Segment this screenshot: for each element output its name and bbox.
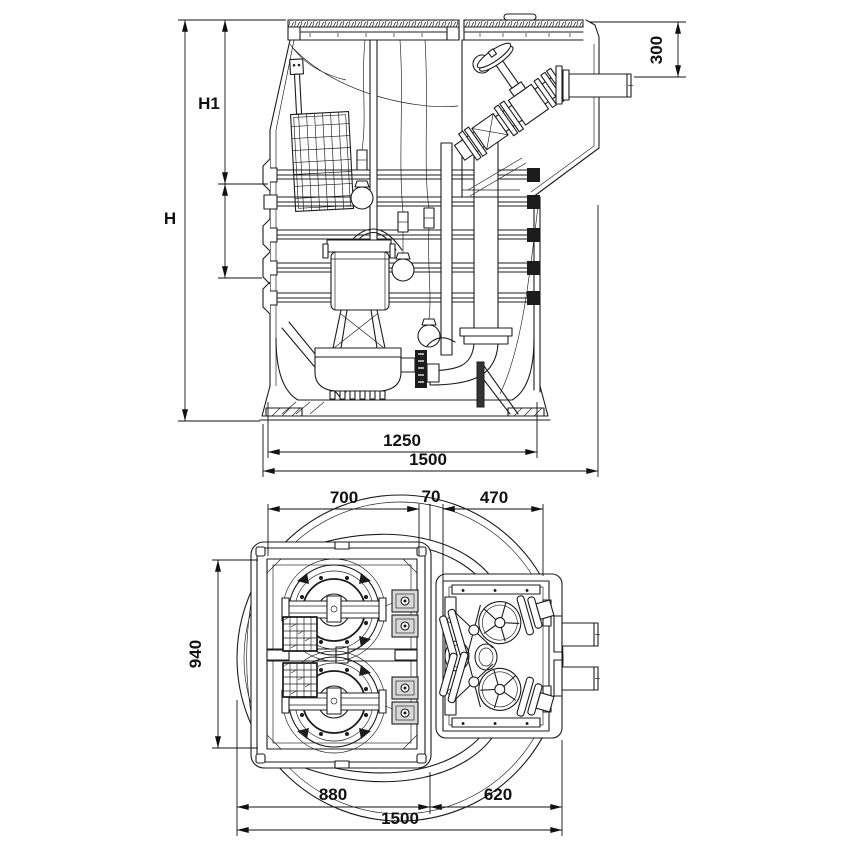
dim-hatch-length-940: 940 xyxy=(186,560,258,748)
dim-label-1500-bottom: 1500 xyxy=(381,809,419,828)
technical-drawing-page: H H1 300 1250 xyxy=(0,0,850,850)
plan-outlet-pipe-2 xyxy=(554,660,600,696)
plan-outlet-pipe-1 xyxy=(554,616,600,652)
dim-label-940: 940 xyxy=(186,640,205,668)
dim-overall-width-1500-plan: 1500 xyxy=(237,809,562,830)
dim-label-700: 700 xyxy=(330,488,358,507)
floor-grating-2 xyxy=(283,663,317,697)
tank-interior xyxy=(288,40,538,414)
dim-label-H: H xyxy=(164,209,176,228)
dim-label-70: 70 xyxy=(422,487,441,506)
dim-label-H1: H1 xyxy=(198,94,220,113)
outlet-pipe xyxy=(556,66,633,104)
dim-right-section-620: 620 xyxy=(430,740,562,836)
float-switch-3 xyxy=(418,40,440,347)
dim-label-470: 470 xyxy=(480,488,508,507)
tank-ribs xyxy=(264,168,540,305)
dim-valve-hatch-470: 470 xyxy=(443,488,543,576)
dim-label-300: 300 xyxy=(647,36,666,64)
dim-base-width-1250: 1250 xyxy=(268,402,537,458)
pump-station-drawing: H H1 300 1250 xyxy=(0,0,850,850)
dim-inlet-height-H1: H1 xyxy=(198,20,268,184)
plan-view: 700 70 470 940 880 xyxy=(186,487,600,836)
dim-level-segment xyxy=(218,184,262,278)
guide-rail xyxy=(370,40,377,242)
floor-grating-1 xyxy=(283,617,317,651)
inlet-grating xyxy=(288,57,354,212)
dim-label-880: 880 xyxy=(319,785,347,804)
dim-label-1500-top: 1500 xyxy=(409,450,447,469)
dim-label-1250: 1250 xyxy=(383,431,421,450)
elevation-view: H H1 300 1250 xyxy=(164,14,686,477)
dim-label-620: 620 xyxy=(484,785,512,804)
dim-outlet-depth-300: 300 xyxy=(590,22,686,77)
